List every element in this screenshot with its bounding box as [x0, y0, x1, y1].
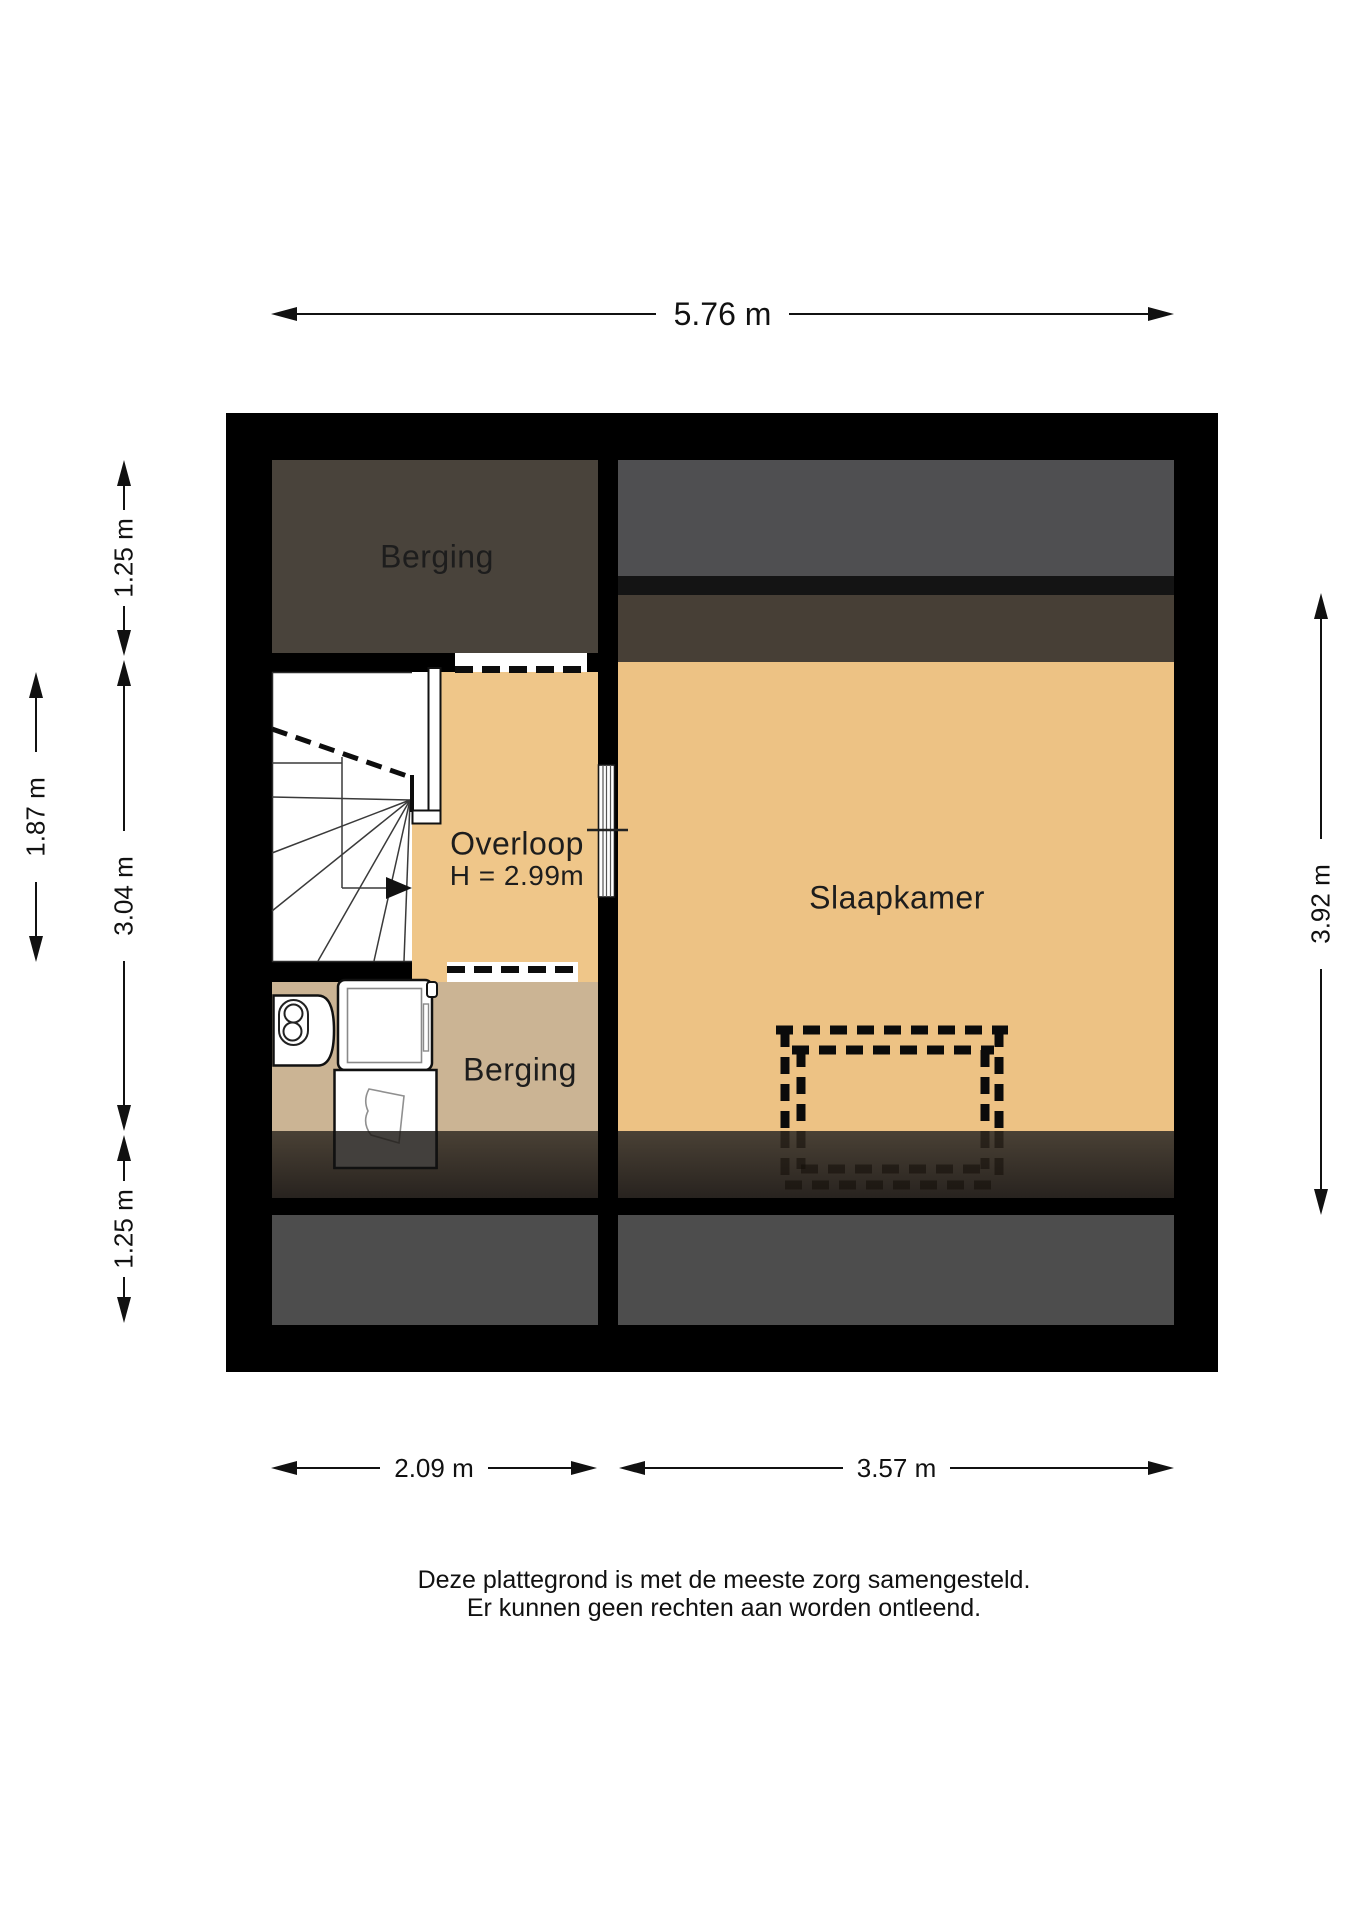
boiler-icon	[274, 996, 335, 1066]
dimension-right: 3.92 m	[1303, 593, 1339, 1215]
door-dashes	[447, 670, 587, 970]
dimension-left-middle-label: 3.04 m	[109, 856, 140, 936]
disclaimer-line2: Er kunnen geen rechten aan worden ontlee…	[418, 1594, 1031, 1622]
laundry-box-icon	[333, 1070, 438, 1169]
dimension-stairwell: 1.87 m	[18, 672, 54, 962]
glazing-panel-icon	[587, 765, 628, 897]
arrow-down-icon	[117, 630, 131, 656]
arrow-left-icon	[619, 1461, 645, 1475]
dimension-bottom-left-label: 2.09 m	[380, 1453, 488, 1484]
floorplan-page: Berging Overloop H = 2.99m Slaapkamer Be…	[0, 0, 1358, 1920]
label-berging-bottom: Berging	[463, 1052, 577, 1089]
staircase-icon	[272, 668, 441, 962]
dimension-stairwell-label: 1.87 m	[21, 777, 52, 857]
arrow-left-icon	[271, 1461, 297, 1475]
dimension-right-label: 3.92 m	[1306, 864, 1337, 944]
arrow-up-icon	[29, 672, 43, 698]
dormer-dashed-outline	[776, 1030, 1008, 1131]
dimension-total-width: 5.76 m	[271, 296, 1174, 332]
label-overloop: Overloop	[450, 826, 584, 863]
dimension-bottom-right-label: 3.57 m	[843, 1453, 951, 1484]
arrow-down-icon	[117, 1297, 131, 1323]
label-slaapkamer: Slaapkamer	[809, 880, 985, 917]
floorplan-drawing: Berging Overloop H = 2.99m Slaapkamer Be…	[226, 413, 1218, 1372]
arrow-right-icon	[1148, 307, 1174, 321]
dimension-left-bottom: 1.25 m	[106, 1135, 142, 1323]
dimension-left-top: 1.25 m	[106, 460, 142, 656]
label-berging-top: Berging	[380, 539, 494, 576]
dimension-left-bottom-label: 1.25 m	[109, 1189, 140, 1269]
dormer-outline-reflection	[785, 1131, 999, 1185]
dimension-bottom-right: 3.57 m	[619, 1450, 1174, 1486]
dimension-left-middle: 3.04 m	[106, 660, 142, 1131]
dimension-left-top-label: 1.25 m	[109, 518, 140, 598]
arrow-left-icon	[271, 307, 297, 321]
disclaimer: Deze plattegrond is met de meeste zorg s…	[418, 1566, 1031, 1622]
stair-railing	[429, 668, 441, 821]
arrow-up-icon	[117, 460, 131, 486]
arrow-down-icon	[117, 1105, 131, 1131]
arrow-up-icon	[1314, 593, 1328, 619]
arrow-right-icon	[1148, 1461, 1174, 1475]
arrow-down-icon	[29, 936, 43, 962]
arrow-down-icon	[1314, 1189, 1328, 1215]
arrow-up-icon	[117, 1135, 131, 1161]
disclaimer-line1: Deze plattegrond is met de meeste zorg s…	[418, 1566, 1031, 1594]
dimension-total-width-label: 5.76 m	[656, 296, 790, 333]
label-overloop-height: H = 2.99m	[450, 860, 584, 892]
stair-direction-arrow-icon	[386, 877, 412, 899]
arrow-up-icon	[117, 660, 131, 686]
washing-machine-icon	[338, 980, 437, 1070]
dimension-bottom-left: 2.09 m	[271, 1450, 597, 1486]
plan-linework	[226, 413, 1218, 1372]
arrow-right-icon	[571, 1461, 597, 1475]
